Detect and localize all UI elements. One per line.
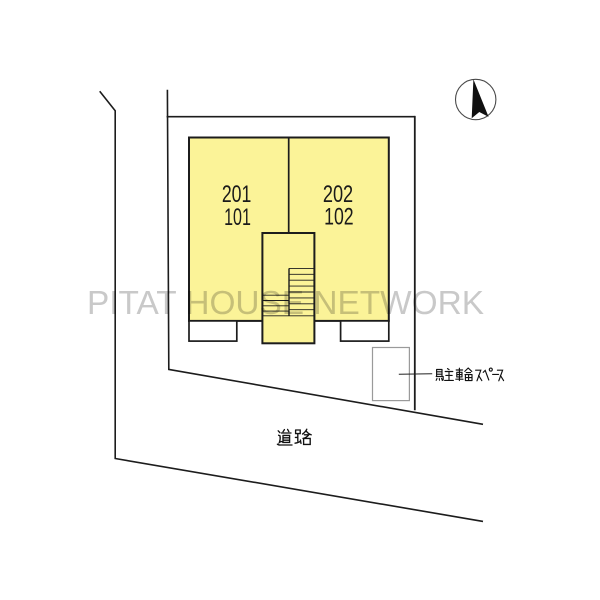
svg-text:101: 101 — [224, 204, 251, 231]
svg-text:102: 102 — [324, 204, 354, 231]
